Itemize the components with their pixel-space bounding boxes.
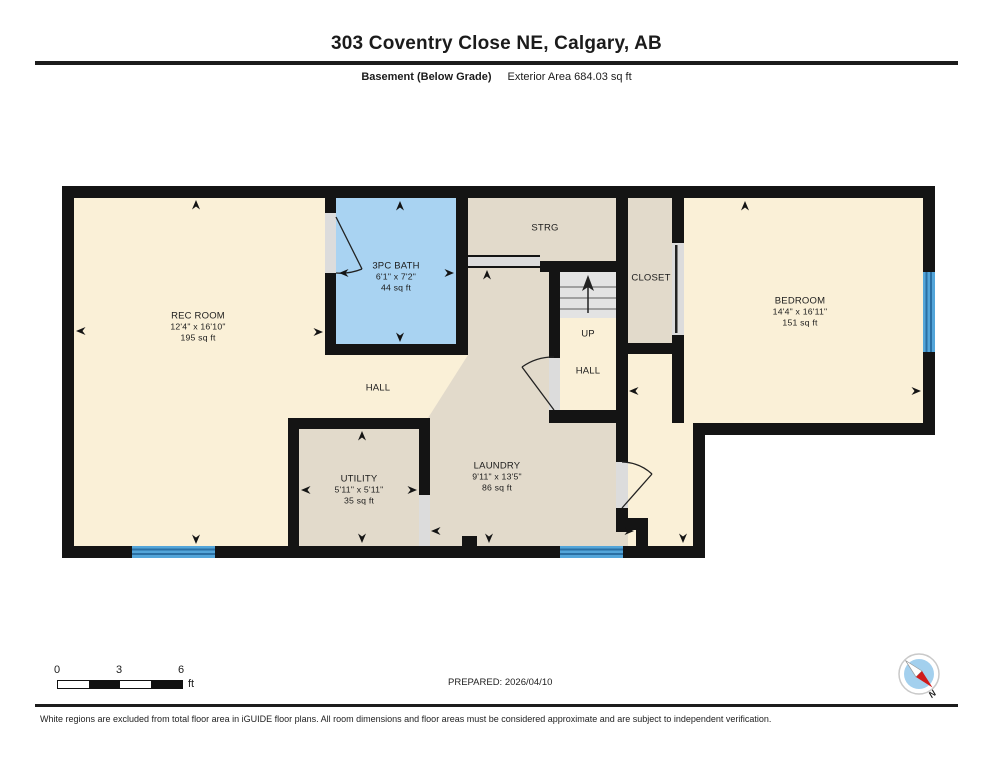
footer-rule	[35, 704, 958, 707]
disclaimer-text: White regions are excluded from total fl…	[40, 714, 960, 724]
compass-icon	[0, 0, 993, 768]
floorplan-page: 303 Coventry Close NE, Calgary, AB Basem…	[0, 0, 993, 768]
